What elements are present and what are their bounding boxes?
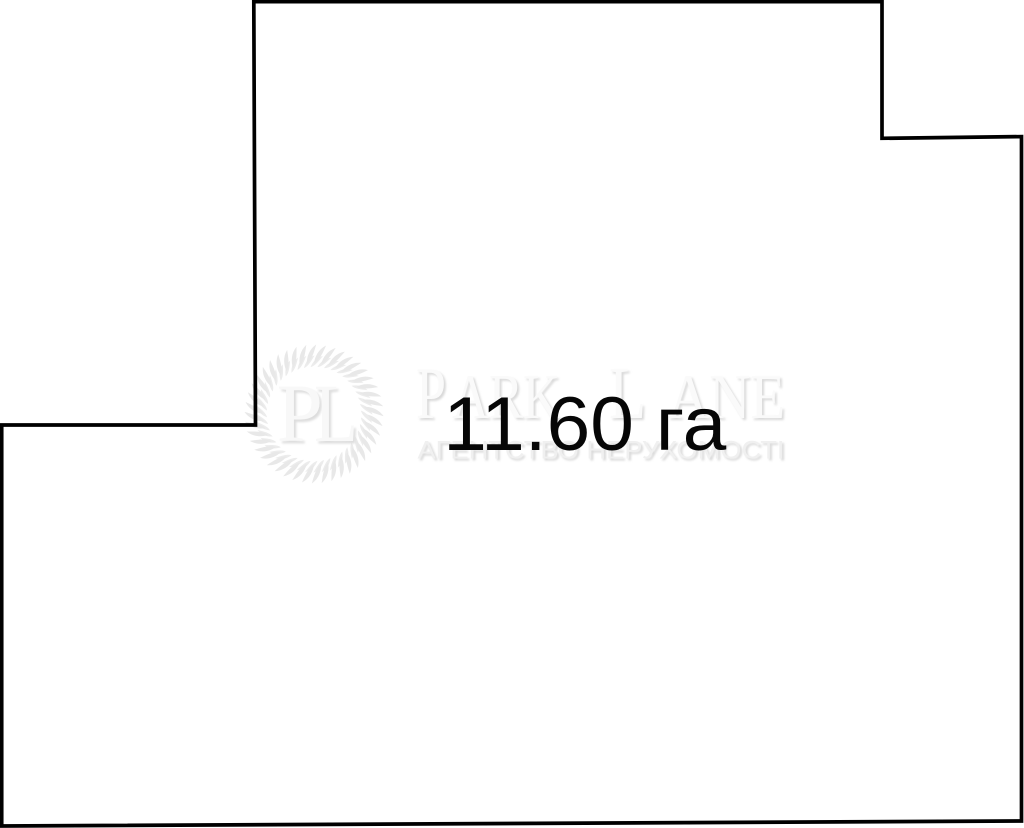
svg-text:L: L — [314, 367, 358, 459]
svg-text:11.60 га: 11.60 га — [443, 382, 727, 467]
svg-text:P: P — [416, 353, 446, 435]
